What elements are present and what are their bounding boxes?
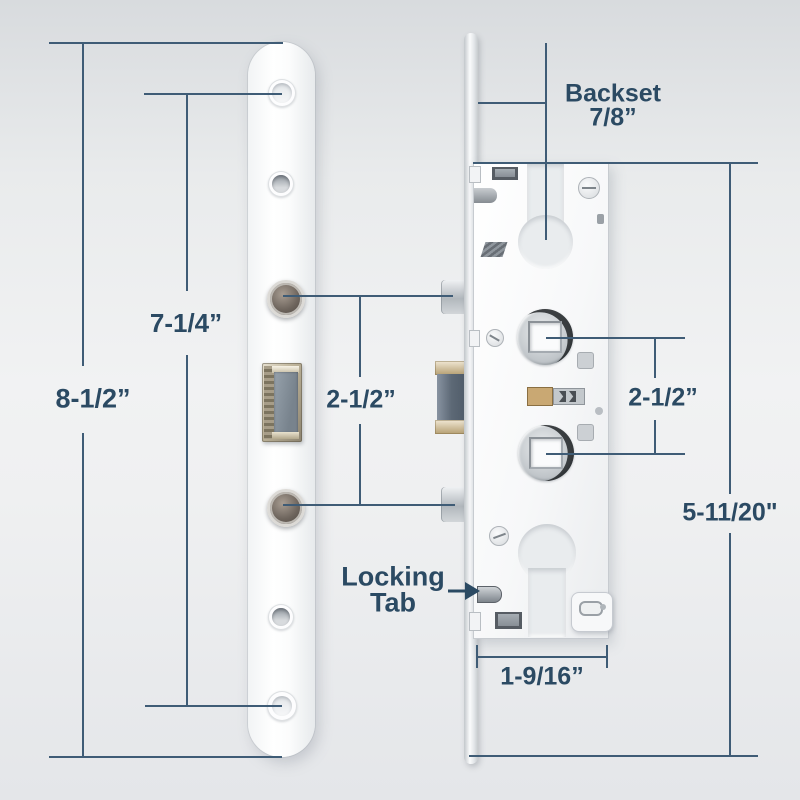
dimension-lines-layer [0, 0, 800, 800]
locking-tab-arrow-head [465, 582, 480, 600]
case-width-line [477, 645, 607, 668]
lock-dimension-diagram: { "colors": { "line": "#3f5c76", "text":… [0, 0, 800, 800]
